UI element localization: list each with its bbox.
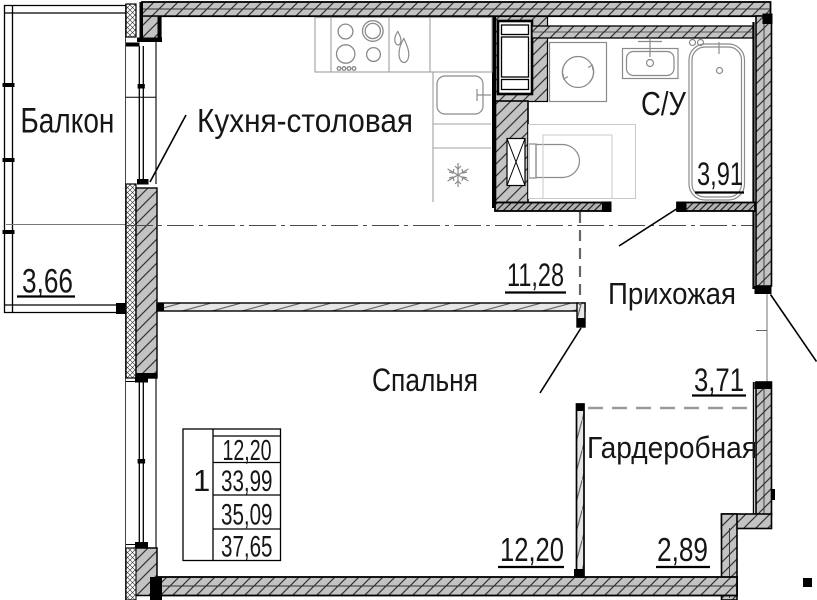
svg-text:2,89: 2,89 [657,531,708,568]
svg-text:33,99: 33,99 [221,465,273,498]
svg-text:1: 1 [193,463,210,498]
svg-text:3,91: 3,91 [697,156,743,192]
svg-text:35,09: 35,09 [221,499,273,532]
svg-text:11,28: 11,28 [507,257,564,293]
svg-text:Гардеробная: Гардеробная [587,430,757,465]
svg-text:Балкон: Балкон [20,102,114,141]
svg-text:37,65: 37,65 [221,531,273,564]
svg-text:Прихожая: Прихожая [608,276,736,311]
svg-text:С/У: С/У [641,85,687,122]
svg-text:Спальня: Спальня [372,362,478,398]
svg-text:Кухня-столовая: Кухня-столовая [197,102,413,139]
svg-text:3,71: 3,71 [694,362,744,398]
svg-text:12,20: 12,20 [500,531,564,568]
svg-text:12,20: 12,20 [223,435,272,467]
svg-text:3,66: 3,66 [22,262,73,300]
